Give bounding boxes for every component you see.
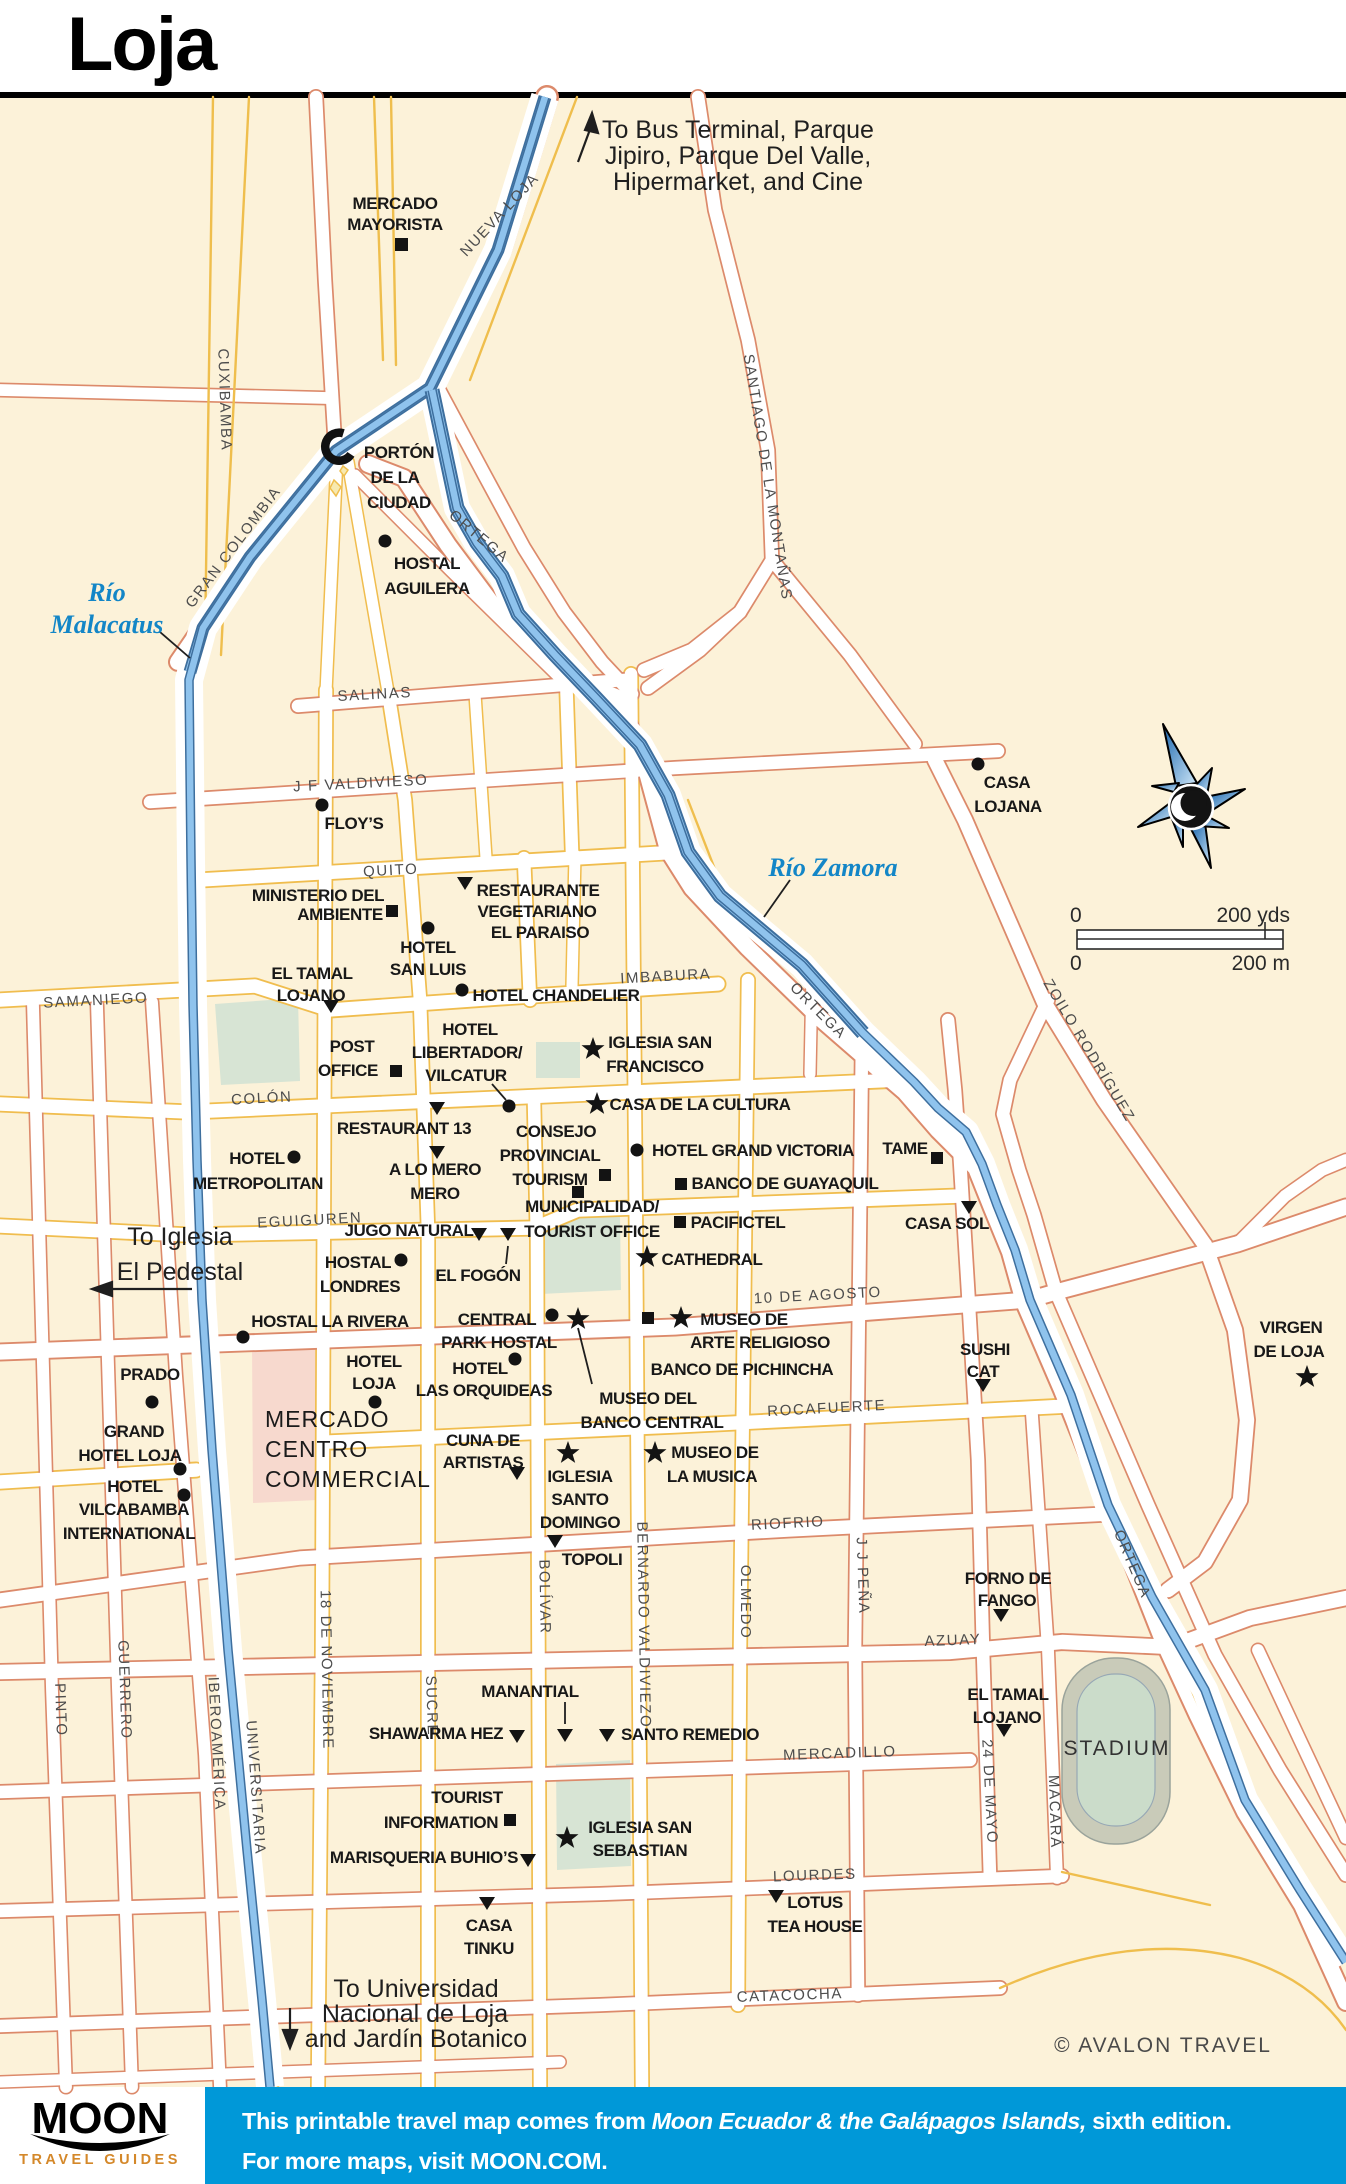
svg-text:PROVINCIAL: PROVINCIAL xyxy=(500,1146,601,1165)
svg-text:SANTO: SANTO xyxy=(551,1490,608,1509)
svg-text:SEBASTIAN: SEBASTIAN xyxy=(593,1841,688,1860)
svg-text:CONSEJO: CONSEJO xyxy=(516,1122,597,1141)
svg-text:IGLESIA: IGLESIA xyxy=(547,1467,612,1486)
svg-text:TRAVEL GUIDES: TRAVEL GUIDES xyxy=(19,2152,181,2168)
svg-text:EL TAMAL: EL TAMAL xyxy=(967,1685,1048,1704)
svg-text:TOURIST: TOURIST xyxy=(431,1788,504,1807)
svg-text:COMMERCIAL: COMMERCIAL xyxy=(265,1466,431,1492)
svg-text:GRAND: GRAND xyxy=(104,1422,164,1441)
svg-text:MOON: MOON xyxy=(32,2094,169,2143)
svg-text:CATHEDRAL: CATHEDRAL xyxy=(662,1250,763,1269)
svg-text:LOTUS: LOTUS xyxy=(787,1893,843,1912)
svg-text:SHAWARMA HEZ: SHAWARMA HEZ xyxy=(369,1724,503,1743)
svg-text:VEGETARIANO: VEGETARIANO xyxy=(477,902,596,921)
svg-text:Río Zamora: Río Zamora xyxy=(767,853,897,882)
svg-text:MACARÁ: MACARÁ xyxy=(1045,1775,1065,1849)
svg-text:FORNO DE: FORNO DE xyxy=(965,1569,1052,1588)
svg-text:CENTRAL: CENTRAL xyxy=(458,1310,536,1329)
svg-text:MUNICIPALIDAD/: MUNICIPALIDAD/ xyxy=(525,1197,660,1216)
svg-text:CASA: CASA xyxy=(984,773,1031,792)
svg-text:ARTE RELIGIOSO: ARTE RELIGIOSO xyxy=(690,1333,830,1352)
svg-text:IGLESIA SAN: IGLESIA SAN xyxy=(588,1818,692,1837)
svg-text:MERCADO: MERCADO xyxy=(352,194,437,213)
svg-text:OFFICE: OFFICE xyxy=(318,1061,378,1080)
svg-text:TINKU: TINKU xyxy=(464,1939,514,1958)
svg-text:CUNA DE: CUNA DE xyxy=(446,1431,520,1450)
svg-text:© AVALON TRAVEL: © AVALON TRAVEL xyxy=(1054,2034,1272,2057)
svg-text:HOSTAL LA RIVERA: HOSTAL LA RIVERA xyxy=(251,1312,409,1331)
svg-text:RESTAURANT 13: RESTAURANT 13 xyxy=(337,1119,471,1138)
svg-text:TAME: TAME xyxy=(882,1139,927,1158)
svg-text:CENTRO: CENTRO xyxy=(265,1436,368,1462)
svg-text:To Iglesia: To Iglesia xyxy=(127,1223,233,1251)
svg-text:BANCO DE PICHINCHA: BANCO DE PICHINCHA xyxy=(651,1360,834,1379)
svg-text:EL TAMAL: EL TAMAL xyxy=(271,964,352,983)
svg-text:To Universidad: To Universidad xyxy=(333,1975,498,2003)
svg-text:TEA HOUSE: TEA HOUSE xyxy=(768,1917,863,1936)
svg-text:TOPOLI: TOPOLI xyxy=(562,1550,623,1569)
svg-text:BANCO DE GUAYAQUIL: BANCO DE GUAYAQUIL xyxy=(691,1174,878,1193)
svg-text:HOTEL LOJA: HOTEL LOJA xyxy=(78,1446,181,1465)
svg-text:MUSEO DEL: MUSEO DEL xyxy=(599,1389,696,1408)
svg-text:LIBERTADOR/: LIBERTADOR/ xyxy=(412,1043,523,1062)
svg-text:DE LOJA: DE LOJA xyxy=(1254,1342,1325,1361)
svg-text:200 yds: 200 yds xyxy=(1216,904,1290,927)
svg-text:BOLÍVAR: BOLÍVAR xyxy=(535,1559,553,1634)
svg-text:For more maps, visit MOON.COM.: For more maps, visit MOON.COM. xyxy=(242,2148,607,2174)
svg-text:LOJANA: LOJANA xyxy=(974,797,1042,816)
svg-text:HOTEL CHANDELIER: HOTEL CHANDELIER xyxy=(472,986,639,1005)
svg-text:MINISTERIO DEL: MINISTERIO DEL xyxy=(252,886,384,905)
svg-text:BERNARDO VALDIVIEZO: BERNARDO VALDIVIEZO xyxy=(633,1521,654,1728)
svg-text:HOTEL: HOTEL xyxy=(107,1477,163,1496)
svg-text:Nacional de Loja: Nacional de Loja xyxy=(322,2000,508,2028)
svg-text:TOURISM: TOURISM xyxy=(512,1170,588,1189)
svg-text:CAT: CAT xyxy=(967,1362,1000,1381)
svg-text:INTERNATIONAL: INTERNATIONAL xyxy=(63,1524,195,1543)
svg-text:HOTEL: HOTEL xyxy=(442,1020,498,1039)
svg-text:Loja: Loja xyxy=(67,2,218,87)
svg-text:MANANTIAL: MANANTIAL xyxy=(481,1682,578,1701)
svg-text:POST: POST xyxy=(330,1037,376,1056)
svg-text:PORTÓN: PORTÓN xyxy=(364,443,434,462)
svg-text:CASA: CASA xyxy=(466,1916,513,1935)
svg-text:VILCATUR: VILCATUR xyxy=(425,1066,507,1085)
svg-text:DOMINGO: DOMINGO xyxy=(540,1513,620,1532)
svg-text:HOSTAL: HOSTAL xyxy=(325,1253,391,1272)
svg-text:MUSEO DE: MUSEO DE xyxy=(671,1443,759,1462)
svg-text:FANGO: FANGO xyxy=(978,1591,1037,1610)
svg-text:HOTEL: HOTEL xyxy=(229,1149,285,1168)
svg-text:MAYORISTA: MAYORISTA xyxy=(347,215,443,234)
svg-text:SAN LUIS: SAN LUIS xyxy=(390,960,466,979)
svg-text:LA MUSICA: LA MUSICA xyxy=(667,1467,757,1486)
svg-text:BANCO CENTRAL: BANCO CENTRAL xyxy=(580,1413,723,1432)
svg-text:J J PEÑA: J J PEÑA xyxy=(853,1537,873,1615)
svg-text:LOJANO: LOJANO xyxy=(973,1708,1042,1727)
svg-text:HOSTAL: HOSTAL xyxy=(394,554,460,573)
svg-text:OLMEDO: OLMEDO xyxy=(737,1565,754,1640)
svg-text:LOJANO: LOJANO xyxy=(277,986,346,1005)
svg-text:METROPOLITAN: METROPOLITAN xyxy=(193,1174,323,1193)
svg-text:EL FOGÓN: EL FOGÓN xyxy=(435,1266,520,1285)
svg-text:LAS ORQUIDEAS: LAS ORQUIDEAS xyxy=(416,1381,553,1400)
svg-text:LOJA: LOJA xyxy=(352,1374,396,1393)
svg-text:DE LA: DE LA xyxy=(370,468,419,487)
svg-text:JUGO NATURAL: JUGO NATURAL xyxy=(345,1221,474,1240)
svg-text:CUXIBAMBA: CUXIBAMBA xyxy=(214,348,235,451)
svg-text:0: 0 xyxy=(1070,952,1082,975)
svg-text:PARK HOSTAL: PARK HOSTAL xyxy=(441,1333,557,1352)
svg-text:TOURIST OFFICE: TOURIST OFFICE xyxy=(524,1222,660,1241)
svg-text:LONDRES: LONDRES xyxy=(320,1277,400,1296)
svg-text:MUSEO DE: MUSEO DE xyxy=(700,1310,788,1329)
svg-text:HOTEL GRAND VICTORIA: HOTEL GRAND VICTORIA xyxy=(652,1141,854,1160)
svg-text:VIRGEN: VIRGEN xyxy=(1260,1318,1323,1337)
svg-text:CIUDAD: CIUDAD xyxy=(367,493,431,512)
svg-text:MERCADO: MERCADO xyxy=(265,1406,390,1432)
svg-text:Río: Río xyxy=(87,578,126,607)
svg-text:CASA SOL: CASA SOL xyxy=(905,1214,989,1233)
svg-text:18 DE NOVIEMBRE: 18 DE NOVIEMBRE xyxy=(317,1590,337,1750)
svg-text:FRANCISCO: FRANCISCO xyxy=(606,1057,704,1076)
svg-text:MERO: MERO xyxy=(410,1184,460,1203)
svg-text:0: 0 xyxy=(1070,904,1082,927)
svg-text:This printable travel map come: This printable travel map comes from Moo… xyxy=(242,2108,1231,2134)
svg-text:VILCABAMBA: VILCABAMBA xyxy=(79,1500,189,1519)
svg-text:Hipermarket, and Cine: Hipermarket, and Cine xyxy=(613,168,863,196)
svg-text:IGLESIA SAN: IGLESIA SAN xyxy=(608,1033,712,1052)
svg-text:GUERRERO: GUERRERO xyxy=(114,1640,134,1740)
svg-text:ARTISTAS: ARTISTAS xyxy=(443,1453,524,1472)
svg-text:MARISQUERIA BUHIO’S: MARISQUERIA BUHIO’S xyxy=(330,1848,518,1867)
svg-text:AGUILERA: AGUILERA xyxy=(384,579,470,598)
svg-text:FLOY’S: FLOY’S xyxy=(325,814,384,833)
svg-text:LOURDES: LOURDES xyxy=(773,1866,857,1886)
svg-text:COLÓN: COLÓN xyxy=(231,1088,293,1108)
svg-text:CASA DE LA CULTURA: CASA DE LA CULTURA xyxy=(609,1095,790,1114)
svg-text:El Pedestal: El Pedestal xyxy=(117,1258,243,1286)
svg-text:PINTO: PINTO xyxy=(51,1683,70,1737)
svg-text:AMBIENTE: AMBIENTE xyxy=(297,905,383,924)
svg-text:HOTEL: HOTEL xyxy=(452,1359,508,1378)
svg-text:Malacatus: Malacatus xyxy=(50,610,164,639)
svg-text:AZUAY: AZUAY xyxy=(924,1631,981,1650)
svg-text:and Jardín Botanico: and Jardín Botanico xyxy=(305,2025,527,2053)
svg-text:200 m: 200 m xyxy=(1232,952,1290,975)
svg-text:SANTO REMEDIO: SANTO REMEDIO xyxy=(621,1725,759,1744)
svg-text:QUITO: QUITO xyxy=(363,861,419,881)
svg-text:HOTEL: HOTEL xyxy=(346,1352,402,1371)
svg-text:Jipiro, Parque Del Valle,: Jipiro, Parque Del Valle, xyxy=(605,142,871,170)
svg-text:PRADO: PRADO xyxy=(120,1365,180,1384)
svg-text:STADIUM: STADIUM xyxy=(1064,1737,1171,1760)
svg-text:INFORMATION: INFORMATION xyxy=(384,1813,498,1832)
svg-text:PACIFICTEL: PACIFICTEL xyxy=(691,1213,786,1232)
svg-text:HOTEL: HOTEL xyxy=(400,938,456,957)
svg-text:RESTAURANTE: RESTAURANTE xyxy=(477,881,600,900)
svg-text:A LO MERO: A LO MERO xyxy=(389,1160,481,1179)
svg-text:EL PARAISO: EL PARAISO xyxy=(491,923,590,942)
svg-text:To Bus Terminal, Parque: To Bus Terminal, Parque xyxy=(602,116,874,144)
svg-text:SUSHI: SUSHI xyxy=(960,1340,1010,1359)
